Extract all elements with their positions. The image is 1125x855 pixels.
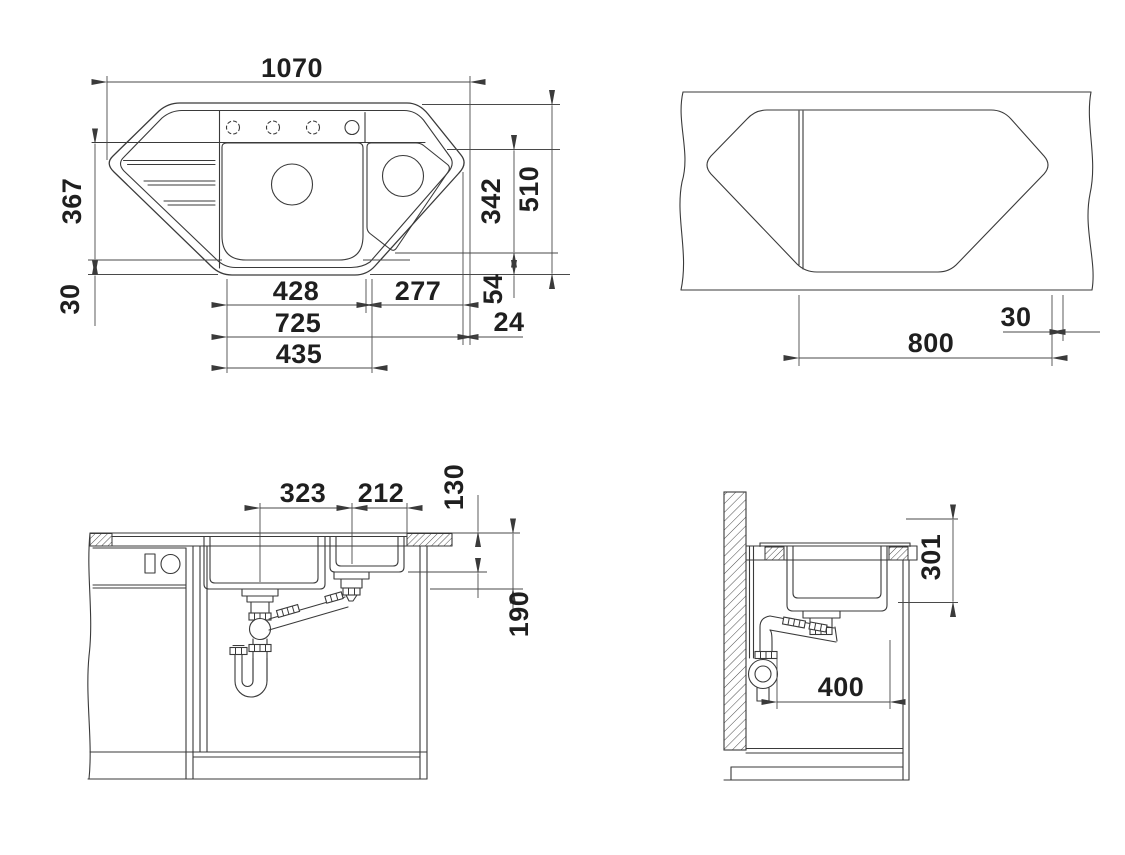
dim-label-bowls-span: 725 <box>275 308 322 338</box>
counter-hatch <box>765 547 784 560</box>
main-bowl-drain <box>272 164 313 205</box>
dim-label-overall-depth: 510 <box>514 166 544 213</box>
dim-label-bowl-depth: 301 <box>916 534 946 581</box>
dim-label-front-offset: 30 <box>55 283 85 314</box>
front-section-dimensions: 323 212 130 190 <box>260 464 534 638</box>
side-trap <box>749 660 778 689</box>
dim-label-small-drain-offset: 212 <box>358 478 405 508</box>
counter-break-edge-left <box>680 92 685 290</box>
dim-label-small-bowl-width: 277 <box>395 276 442 306</box>
sink-outer-outline <box>109 103 464 275</box>
cutout-outline <box>707 110 1048 272</box>
waste-plumbing <box>230 503 407 697</box>
plan-view: 1070 367 30 342 510 54 4 <box>55 53 570 373</box>
dim-label-drain-height: 190 <box>504 591 534 638</box>
trap-ball-joint <box>250 619 271 640</box>
dim-label-small-bowl-depth: 130 <box>439 464 469 511</box>
side-section-view: 301 400 <box>724 492 958 780</box>
counter-hatch <box>889 547 908 560</box>
drainboard-grooves <box>124 161 216 206</box>
cutout-view: 800 30 <box>680 92 1100 366</box>
dim-label-overall-width: 1070 <box>261 53 323 83</box>
sink-inner-outline <box>121 111 453 268</box>
main-bowl <box>222 143 363 260</box>
plan-dimensions: 1070 367 30 342 510 54 4 <box>55 53 570 373</box>
dim-label-side-edge: 24 <box>493 307 524 337</box>
bowls-section <box>204 537 404 590</box>
front-section-view: 323 212 130 190 <box>88 464 534 779</box>
dishwasher-knob <box>161 555 180 574</box>
u-trap <box>235 655 267 697</box>
cutout-dimensions: 800 30 <box>799 295 1100 366</box>
dim-label-corner-span: 800 <box>908 328 955 358</box>
dim-label-edge-clearance: 30 <box>1000 302 1031 332</box>
sink-technical-drawing: 1070 367 30 342 510 54 4 <box>0 0 1125 855</box>
dim-label-main-drain-offset: 323 <box>280 478 327 508</box>
tap-hole-icon <box>227 121 240 134</box>
counter-break-edge-right <box>1088 92 1093 290</box>
small-bowl-drain <box>383 156 424 197</box>
bowl-section <box>787 546 887 611</box>
dim-label-drainer-depth: 367 <box>57 178 87 225</box>
tap-ledge <box>92 111 425 268</box>
dim-label-main-bowl-width: 428 <box>273 276 320 306</box>
dim-label-main-bowl-outer: 435 <box>276 339 323 369</box>
dim-label-corner-bowl-depth: 342 <box>476 178 506 225</box>
cabinet-break-edge <box>88 533 91 779</box>
dishwasher <box>88 533 193 779</box>
dishwasher-display <box>145 554 155 573</box>
dim-label-rear-edge: 54 <box>478 273 508 304</box>
wall-hatch <box>724 492 746 750</box>
dim-label-trap-clearance: 400 <box>818 672 865 702</box>
counter-hatch <box>407 534 452 547</box>
tap-hole-icon <box>345 121 359 135</box>
sink-cabinet <box>88 546 427 779</box>
tap-hole-icon <box>267 121 280 134</box>
technical-drawing-page: 1070 367 30 342 510 54 4 <box>0 0 1125 855</box>
counter-hatch <box>90 534 112 547</box>
tap-hole-icon <box>307 121 320 134</box>
